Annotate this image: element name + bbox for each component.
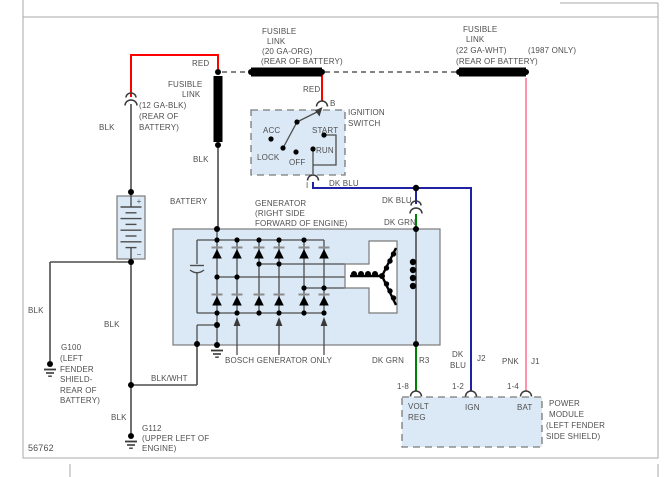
pin-1-2: 1-2 — [452, 382, 464, 391]
power-module-terminal-volt-reg: REG — [408, 413, 426, 422]
switch-position-run: RUN — [316, 146, 334, 155]
ground-g100-label: SHIELD- — [60, 375, 93, 384]
generator-label: (RIGHT SIDE — [255, 209, 305, 218]
ground-g112-label: (UPPER LEFT OF — [142, 434, 209, 443]
fusible-link-20ga-bar — [251, 68, 322, 77]
connector-ref-j1: J1 — [531, 357, 540, 366]
switch-position-lock: LOCK — [257, 153, 280, 162]
power-module-label: SIDE SHIELD) — [546, 432, 600, 441]
wire-label-dk-blu: BLU — [450, 361, 466, 370]
wire-label-pnk: PNK — [502, 357, 519, 366]
wire-label-blk-wht: BLK/WHT — [151, 374, 188, 383]
pin-1-4: 1-4 — [507, 382, 519, 391]
ground-g112-label: G112 — [142, 424, 162, 433]
connector-ref-r3: R3 — [419, 356, 430, 365]
power-module-terminal-volt-reg: VOLT — [408, 402, 429, 411]
power-module-bat-connector — [521, 391, 532, 397]
wire-label-blk: BLK — [28, 306, 44, 315]
fusible-link-22ga-label: FUSIBLE — [463, 25, 497, 34]
switch-position-off: OFF — [289, 158, 305, 167]
charging-system-wiring-diagram: FUSIBLE LINK (20 GA-ORG) (REAR OF BATTER… — [0, 0, 666, 477]
fusible-link-12ga-label: (12 GA-BLK) — [139, 101, 187, 110]
fusible-link-12ga-label: (REAR OF — [139, 112, 178, 121]
wire-label-blk: BLK — [193, 155, 209, 164]
connector-ref-j2: J2 — [477, 354, 486, 363]
ground-g100-label: (LEFT — [60, 354, 83, 363]
fusible-link-12ga-label: FUSIBLE — [168, 80, 202, 89]
fusible-link-22ga-label: LINK — [466, 35, 485, 44]
wire-label-dk-blu: DK BLU — [329, 179, 359, 188]
switch-position-start: START — [312, 126, 338, 135]
fusible-link-20ga-label: FUSIBLE — [262, 27, 296, 36]
generator-label: GENERATOR — [255, 199, 306, 208]
fusible-link-22ga-label: (22 GA-WHT) — [456, 46, 507, 55]
wiring-diagram-page: FUSIBLE LINK (20 GA-ORG) (REAR OF BATTER… — [0, 0, 666, 477]
ignition-terminal-b-connector — [317, 101, 328, 107]
wire-label-blk: BLK — [99, 123, 115, 132]
fusible-link-12ga-label: LINK — [182, 90, 201, 99]
fusible-link-20ga-label: (REAR OF BATTERY) — [261, 57, 343, 66]
ground-g100-label: G100 — [61, 343, 82, 352]
battery-minus: − — [137, 250, 142, 259]
battery-label: BATTERY — [170, 197, 208, 206]
fusible-link-22ga-label: (REAR OF BATTERY) — [456, 57, 538, 66]
wire-label-blk: BLK — [104, 320, 120, 329]
battery-plus: + — [137, 197, 142, 206]
wire-label-red: RED — [303, 85, 320, 94]
ground-g112-label: ENGINE) — [142, 444, 177, 453]
wire-label-dk-blu: DK BLU — [382, 196, 412, 205]
wire-label-dk-grn: DK GRN — [372, 356, 404, 365]
fusible-link-20ga-label: LINK — [267, 37, 286, 46]
wire-label-dk-grn: DK GRN — [384, 218, 416, 227]
note-1987-only: (1987 ONLY) — [528, 46, 576, 55]
generator-box — [173, 229, 440, 345]
wire-label-blk: BLK — [111, 413, 127, 422]
ground-g100-label: FENDER — [60, 365, 94, 374]
ignition-terminal-i-connector — [308, 175, 319, 181]
ground-g100-label: REAR OF — [60, 386, 97, 395]
power-module-terminal-ign: IGN — [465, 403, 480, 412]
terminal-b-label: B — [330, 99, 336, 108]
wire-label-dk-blu: DK — [452, 350, 464, 359]
switch-position-acc: ACC — [263, 126, 280, 135]
wire-label-red: RED — [192, 59, 209, 68]
power-module-label: (LEFT FENDER — [546, 421, 605, 430]
power-module-ign-connector — [466, 391, 477, 397]
power-module-label: POWER — [549, 399, 580, 408]
fusible-link-20ga-label: (20 GA-ORG) — [262, 47, 313, 56]
power-module-terminal-bat: BAT — [517, 403, 532, 412]
ignition-switch-label: SWITCH — [348, 119, 381, 128]
terminal-i-label: I — [306, 181, 308, 190]
ground-g112-symbol — [125, 433, 137, 448]
power-module-volt-reg-connector — [411, 391, 422, 397]
ground-g100-label: BATTERY) — [60, 396, 100, 405]
bosch-generator-note: BOSCH GENERATOR ONLY — [225, 356, 333, 365]
fusible-link-12ga-label: BATTERY) — [139, 123, 179, 132]
ground-g100-symbol — [44, 361, 56, 376]
diagram-number: 56762 — [28, 443, 54, 453]
pin-1-8: 1-8 — [397, 382, 409, 391]
ignition-switch-label: IGNITION — [348, 108, 385, 117]
fusible-link-22ga-bar — [459, 68, 526, 77]
generator-label: FORWARD OF ENGINE) — [255, 219, 348, 228]
fusible-link-12ga-bar — [214, 76, 223, 142]
power-module-label: MODULE — [549, 410, 584, 419]
